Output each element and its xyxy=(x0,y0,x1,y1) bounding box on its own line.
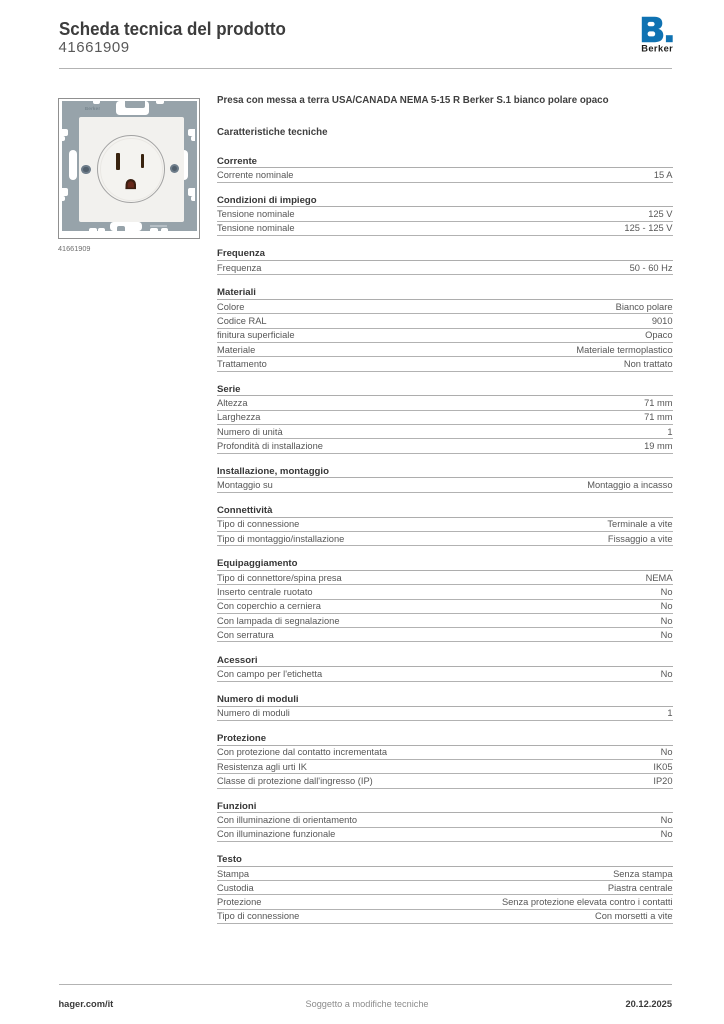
svg-text:Berker: Berker xyxy=(641,44,673,54)
